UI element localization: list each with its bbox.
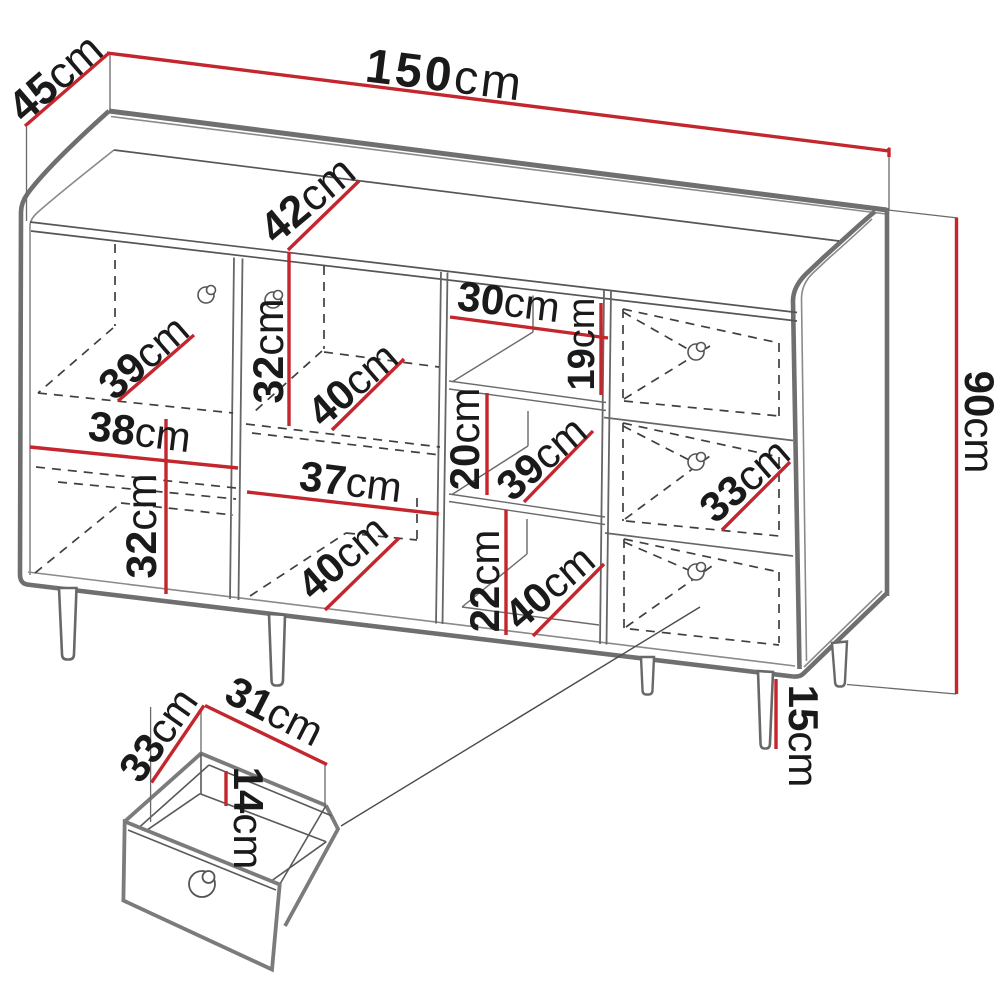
svg-text:90cm: 90cm <box>956 371 1000 474</box>
svg-text:20cm: 20cm <box>441 388 488 491</box>
svg-text:22cm: 22cm <box>461 530 508 633</box>
svg-text:32cm: 32cm <box>118 473 166 578</box>
svg-text:32cm: 32cm <box>245 298 293 403</box>
svg-text:15cm: 15cm <box>780 685 827 788</box>
svg-text:14cm: 14cm <box>225 767 272 870</box>
svg-text:19cm: 19cm <box>561 298 603 391</box>
